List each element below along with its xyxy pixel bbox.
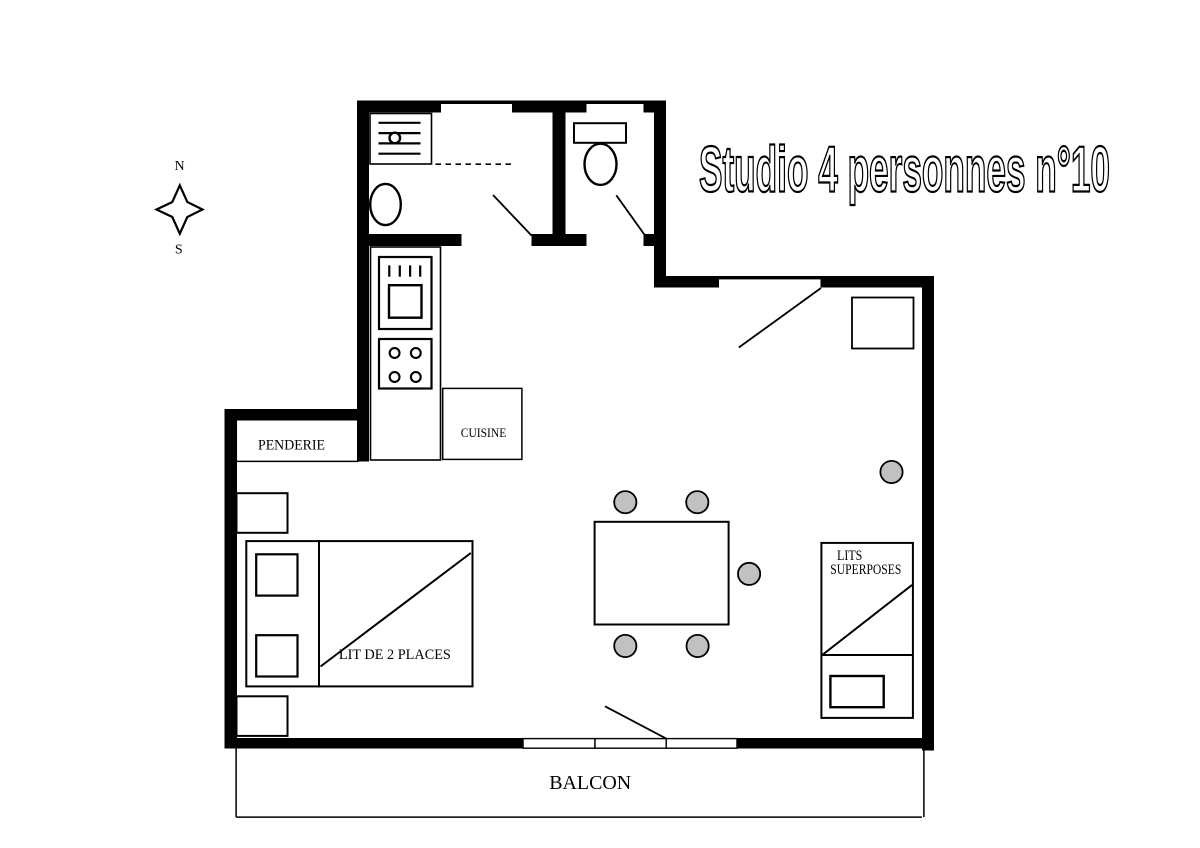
svg-text:LIT DE 2 PLACES: LIT DE 2 PLACES	[339, 647, 451, 663]
svg-text:N: N	[174, 159, 184, 174]
svg-text:PENDERIE: PENDERIE	[258, 438, 325, 454]
svg-text:S: S	[175, 243, 183, 258]
svg-text:SUPERPOSES: SUPERPOSES	[830, 562, 901, 578]
svg-text:BALCON: BALCON	[549, 772, 631, 794]
svg-text:Studio 4 personnes n°10: Studio 4 personnes n°10	[699, 133, 1110, 206]
svg-text:CUISINE: CUISINE	[461, 425, 507, 440]
